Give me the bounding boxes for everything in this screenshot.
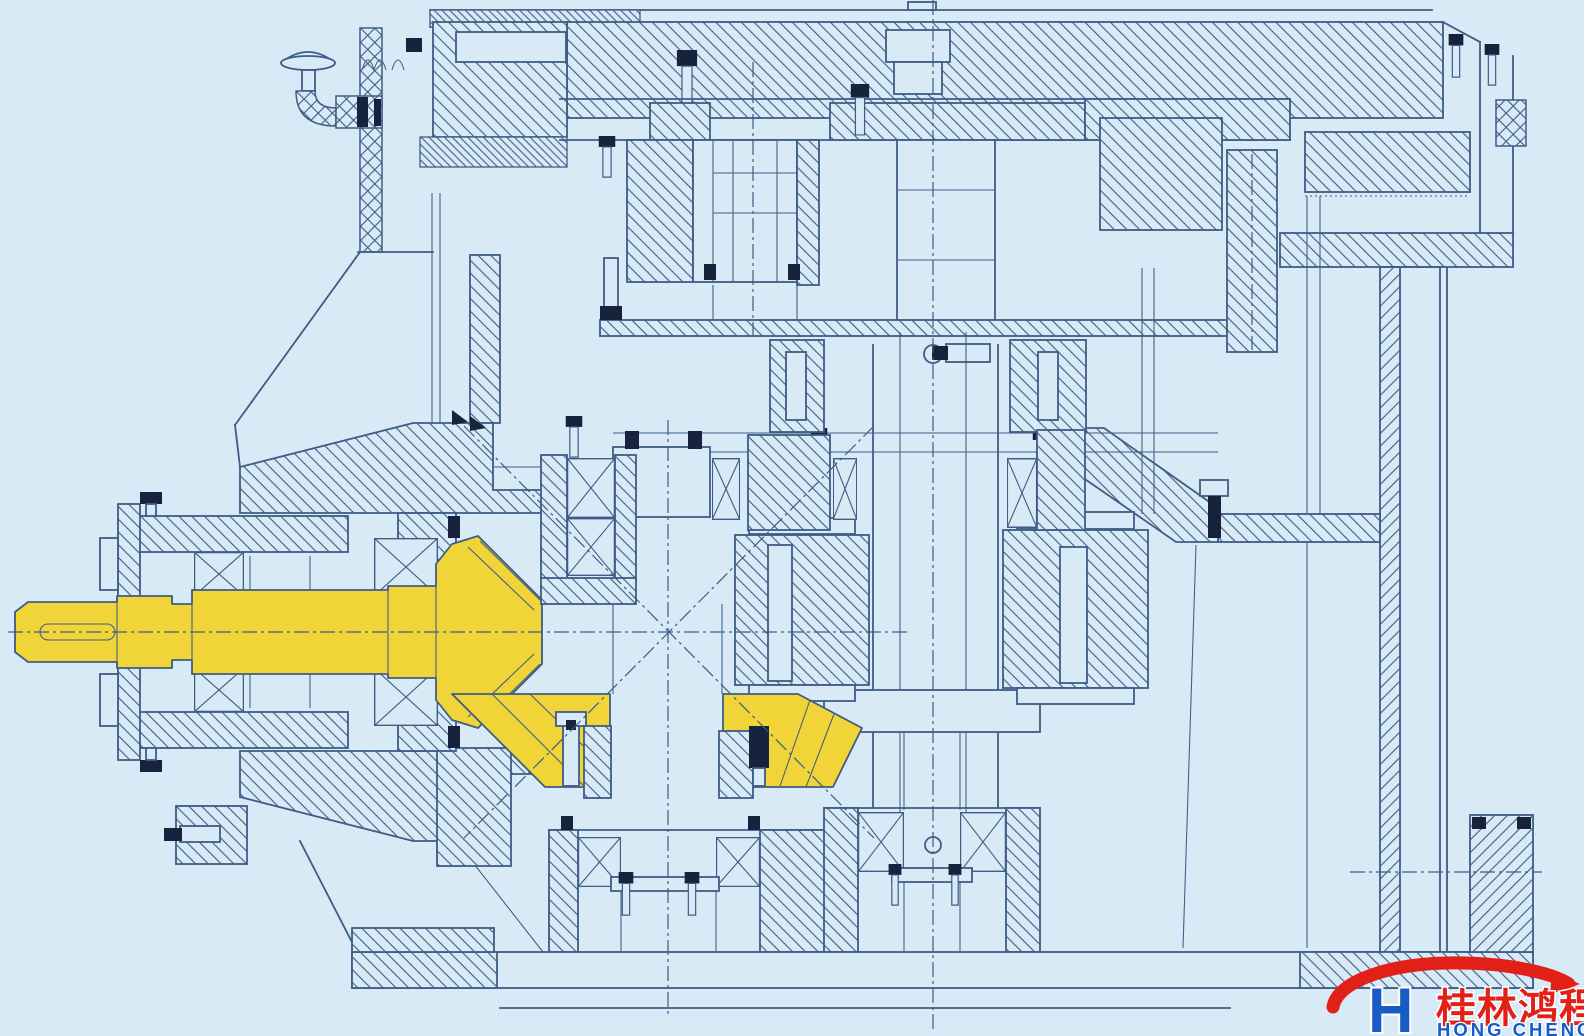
seal xyxy=(561,816,573,830)
hub-seat xyxy=(719,731,753,798)
flange-hatch xyxy=(650,103,710,140)
seat-strip xyxy=(615,455,636,579)
end-cap xyxy=(100,674,118,726)
lower-left-pedestal xyxy=(549,816,830,952)
roller-bearing xyxy=(1007,459,1036,528)
cap-bottom-flange xyxy=(1280,233,1513,267)
pedestal-wall xyxy=(760,830,830,952)
seal xyxy=(1517,817,1531,829)
roller-bearing xyxy=(712,459,739,520)
housing-tube-top xyxy=(137,516,348,552)
seat-block xyxy=(541,578,636,604)
roller-bearing xyxy=(195,552,244,595)
case-joint-band xyxy=(600,320,1242,336)
housing-tube-bottom xyxy=(137,712,348,748)
seal xyxy=(788,264,800,280)
bolt-stem xyxy=(146,748,156,760)
bolt-head xyxy=(140,492,162,504)
breather-elbow xyxy=(296,91,336,126)
wall-slant-line xyxy=(235,252,360,425)
base-foot xyxy=(352,928,494,952)
bolt-head xyxy=(140,760,162,772)
drawing-canvas: H 桂林鸿程 HONG CHENG xyxy=(0,0,1584,1036)
logo-monogram: H xyxy=(1368,976,1414,1036)
hub-slot xyxy=(786,352,806,420)
breather-stem xyxy=(302,70,315,91)
strut-bolt-head xyxy=(1200,480,1228,496)
retainer-bolt xyxy=(889,864,902,905)
roller-bearing xyxy=(195,668,244,711)
tower-shaft-column xyxy=(693,140,797,282)
second-stage-gear xyxy=(584,340,1148,704)
side-bolt-head xyxy=(932,346,948,360)
bolt-head xyxy=(406,38,422,52)
bolt-head xyxy=(688,431,702,449)
pipe-seal xyxy=(374,99,381,126)
roller-bearing xyxy=(567,519,614,576)
cap-bolt xyxy=(1485,44,1500,85)
wall-slant-line xyxy=(300,841,356,950)
top-coupling-lower xyxy=(894,62,942,94)
pipe-seal xyxy=(357,97,368,127)
gearbox-cross-section-drawing: H 桂林鸿程 HONG CHENG xyxy=(0,0,1584,1036)
end-cap xyxy=(100,538,118,590)
roller-bearing xyxy=(716,838,759,887)
inspection-window xyxy=(456,32,566,62)
pedestal-wall xyxy=(824,808,858,952)
roller-bearing xyxy=(567,459,614,518)
gear-keyway xyxy=(1060,547,1087,683)
inner-wall-column xyxy=(470,255,500,423)
seal xyxy=(704,264,716,280)
bevel-ring-gear xyxy=(452,694,862,798)
tower-hatch-block xyxy=(627,140,693,282)
base-hatch xyxy=(352,952,497,988)
side-fitting xyxy=(1496,100,1526,146)
gear-bolt-stem xyxy=(563,726,579,786)
stud-nut xyxy=(600,306,622,320)
hub-seat xyxy=(584,726,611,798)
bolt-stem xyxy=(146,504,156,516)
bolt-head xyxy=(625,431,639,449)
shaft-end xyxy=(908,2,936,10)
first-stage-gear-column xyxy=(897,140,995,330)
lower-right-pedestal xyxy=(824,808,1040,952)
retainer-bolt xyxy=(685,872,700,915)
bearing-seat xyxy=(1037,430,1085,530)
oil-pipe-line xyxy=(1183,545,1196,948)
flange-hatch xyxy=(830,103,1085,140)
top-coupling xyxy=(886,30,950,62)
seal xyxy=(1472,817,1486,829)
pedestal-wall xyxy=(549,830,578,952)
flange-lower-block xyxy=(437,748,511,866)
tower-hatch-strip xyxy=(797,140,819,285)
strut-bolt xyxy=(1208,496,1221,538)
logo-english-text: HONG CHENG xyxy=(1437,1019,1584,1036)
flange-bolt xyxy=(599,136,616,177)
drain-bolt xyxy=(180,826,220,842)
wall-slant-line xyxy=(235,425,240,467)
roller-bearing xyxy=(833,459,857,520)
roller-bearing xyxy=(858,813,903,872)
gear-cap xyxy=(1017,688,1134,704)
spring-symbol xyxy=(392,60,404,70)
breather-cap xyxy=(281,56,335,70)
gear-bolt-stem xyxy=(753,768,765,786)
seat-bolt xyxy=(566,416,583,457)
roller-bearing xyxy=(960,813,1005,872)
support-ledge xyxy=(1218,514,1380,542)
seal xyxy=(748,816,760,830)
gear-rim-left xyxy=(735,535,869,685)
gear-keyway xyxy=(768,545,792,681)
cap-bolt xyxy=(1449,34,1464,77)
corner-block xyxy=(1470,815,1533,952)
gear-bolt-lock xyxy=(566,720,576,730)
ring-gear-teeth-band xyxy=(420,137,567,167)
seat-strip xyxy=(541,455,567,579)
drain-bolt-head xyxy=(164,828,182,841)
stud xyxy=(604,258,618,308)
cap-inner-block xyxy=(1305,132,1470,192)
seal xyxy=(448,726,460,748)
seal xyxy=(448,516,460,538)
wall-hatch-strip xyxy=(1380,267,1400,952)
side-bolt xyxy=(946,344,990,362)
pedestal-wall xyxy=(1006,808,1040,952)
gear-case-block xyxy=(1100,118,1222,230)
hub-slot xyxy=(1038,352,1058,420)
gear-bolt xyxy=(749,726,769,768)
